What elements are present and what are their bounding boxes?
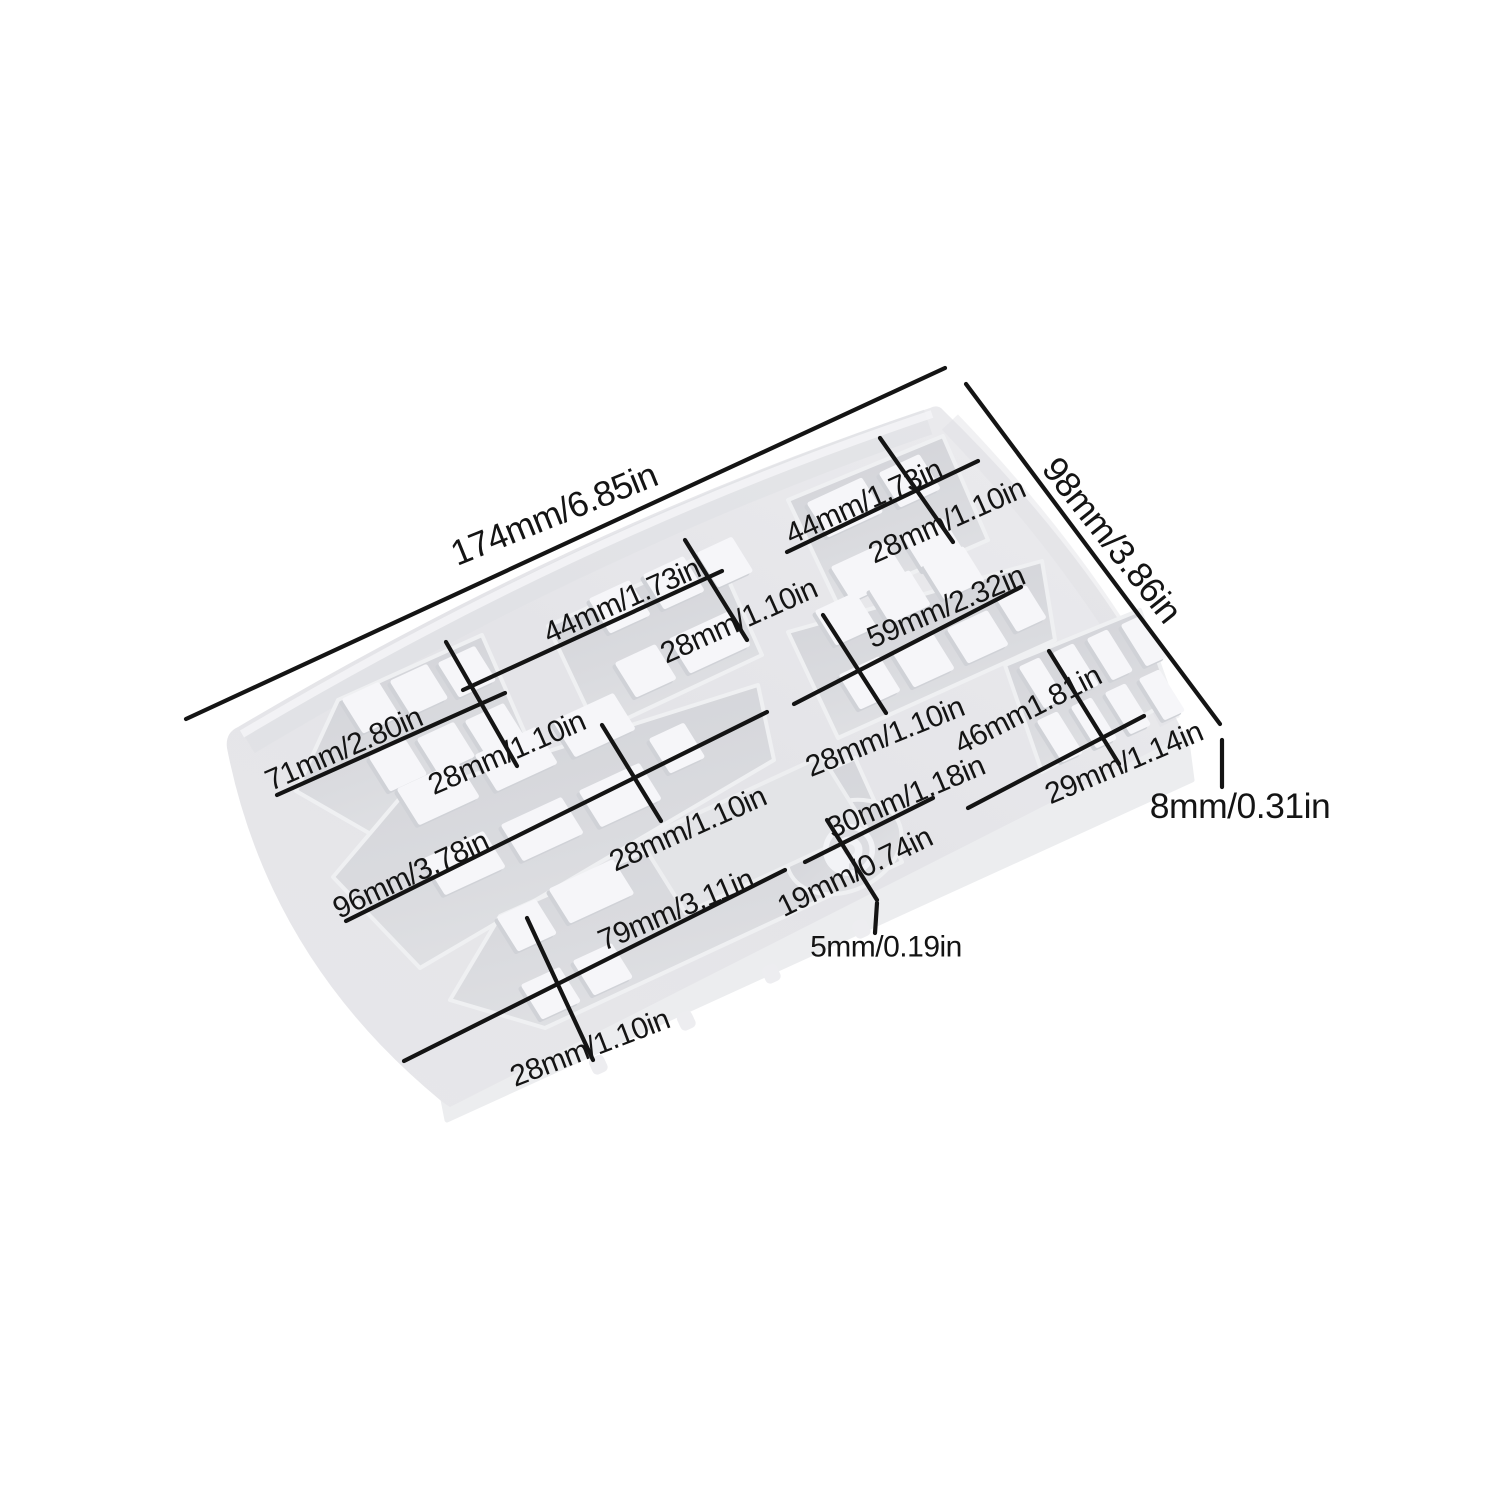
svg-text:5mm/0.19in: 5mm/0.19in bbox=[810, 931, 962, 964]
svg-text:8mm/0.31in: 8mm/0.31in bbox=[1150, 786, 1330, 826]
